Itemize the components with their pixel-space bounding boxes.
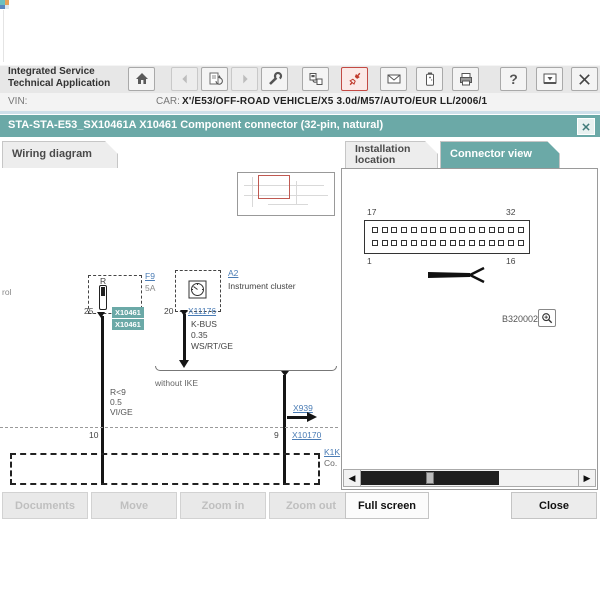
- minimize-screen-button[interactable]: [536, 67, 563, 91]
- connector-pin: [372, 227, 378, 233]
- close-button[interactable]: Close: [511, 492, 597, 519]
- branch-arrow-shaft: [287, 416, 308, 419]
- print-button[interactable]: [452, 67, 479, 91]
- connector-pin-label-topleft: 17: [367, 207, 376, 217]
- wire-label-line2: 0.5: [110, 397, 122, 407]
- wiring-diagram-panel: [0, 168, 339, 490]
- document-refresh-icon: [207, 71, 223, 87]
- connector-pin: [450, 240, 456, 246]
- pin-number-10: 10: [89, 430, 98, 440]
- back-icon: [178, 72, 192, 86]
- close-icon: [581, 122, 591, 132]
- help-icon: ?: [509, 71, 518, 87]
- connector-pin: [391, 227, 397, 233]
- connector-pin: [450, 227, 456, 233]
- variant-note: without IKE: [155, 378, 198, 388]
- tab-wiring-diagram[interactable]: Wiring diagram: [2, 141, 118, 168]
- full-screen-button[interactable]: Full screen: [345, 492, 429, 519]
- move-button[interactable]: Move: [91, 492, 177, 519]
- home-icon: [134, 71, 150, 87]
- connector-pin: [498, 227, 504, 233]
- screenshot-root: Integrated Service Technical Application: [0, 0, 600, 600]
- fuse-rating: 5A: [145, 283, 155, 293]
- connector-pin: [382, 240, 388, 246]
- zoom-in-button[interactable]: Zoom in: [180, 492, 266, 519]
- home-button[interactable]: [128, 67, 155, 91]
- connector-pin: [391, 240, 397, 246]
- magnifier-icon: [541, 312, 553, 324]
- scrollbar-thumb[interactable]: [361, 471, 499, 485]
- component-name-clipped: Co.: [324, 458, 337, 468]
- tab-label: Connector view: [450, 148, 532, 160]
- tab-label: Installation location: [355, 144, 410, 166]
- connector-view-scrollbar[interactable]: ◀ ▶: [343, 469, 596, 487]
- connector-pin: [421, 240, 427, 246]
- connector-body: [364, 220, 530, 254]
- image-zoom-button[interactable]: [538, 309, 556, 327]
- dialog-title: STA-STA-E53_SX10461A X10461 Component co…: [8, 119, 383, 131]
- screen-icon: [542, 71, 558, 87]
- connector-view-panel: [341, 168, 598, 490]
- pin-number: 25: [84, 306, 93, 316]
- cluster-name: Instrument cluster: [228, 281, 296, 291]
- connector-pin: [518, 227, 524, 233]
- connector-pin: [469, 240, 475, 246]
- bus-bracket-line: [155, 366, 337, 371]
- connector-pin: [518, 240, 524, 246]
- connector-pin: [489, 240, 495, 246]
- connector-link-x11176[interactable]: X11176: [188, 306, 216, 316]
- connector-pin-label-topright: 32: [506, 207, 515, 217]
- connector-tag-x10461-a[interactable]: X10461: [112, 307, 144, 318]
- connector-pin: [469, 227, 475, 233]
- component-boundary-box[interactable]: [10, 453, 320, 485]
- connection-icon: [308, 71, 324, 87]
- cluster-link[interactable]: A2: [228, 268, 238, 278]
- zoom-out-button[interactable]: Zoom out: [269, 492, 353, 519]
- connector-tag-x10461-b[interactable]: X10461: [112, 319, 144, 330]
- minimap-viewport[interactable]: [258, 175, 290, 199]
- connector-pin: [372, 240, 378, 246]
- connector-pin-label-bottomleft: 1: [367, 256, 372, 266]
- connector-pin-row: [372, 240, 524, 246]
- fuse-symbol: [99, 285, 107, 310]
- dialog-close-button[interactable]: [577, 118, 595, 135]
- vin-label: VIN:: [8, 96, 27, 107]
- connection-manager-button[interactable]: [302, 67, 329, 91]
- scrollbar-grip: [426, 472, 434, 484]
- connector-pin: [479, 227, 485, 233]
- car-label: CAR:: [156, 96, 180, 107]
- help-button[interactable]: ?: [500, 67, 527, 91]
- scroll-left-button[interactable]: ◀: [344, 470, 361, 486]
- tab-connector-view[interactable]: Connector view: [440, 141, 560, 168]
- app-title-line2: Technical Application: [8, 78, 110, 90]
- connector-pin: [411, 240, 417, 246]
- connector-pin: [401, 227, 407, 233]
- connector-plug-icon: [347, 71, 363, 87]
- connector-pin-row: [372, 227, 524, 233]
- tab-label: Wiring diagram: [12, 148, 92, 160]
- component-link-k1k[interactable]: K1K: [324, 447, 340, 457]
- app-close-button[interactable]: [571, 67, 598, 91]
- connector-pin: [430, 227, 436, 233]
- wire-cluster: [183, 314, 186, 360]
- connector-pin: [508, 227, 514, 233]
- wrench-icon: [267, 71, 283, 87]
- diagram-minimap[interactable]: [237, 172, 335, 216]
- page-corner-artifact: [0, 0, 9, 9]
- close-icon: [577, 72, 592, 87]
- connector-pin-label-bottomright: 16: [506, 256, 515, 266]
- forward-button[interactable]: [231, 67, 258, 91]
- vehicle-connector-button[interactable]: [341, 67, 368, 91]
- connector-pin: [421, 227, 427, 233]
- connector-pin: [382, 227, 388, 233]
- fuse-link[interactable]: F9: [145, 271, 155, 281]
- branch-arrow-head: [307, 412, 317, 422]
- tab-label-line2: location: [355, 154, 395, 166]
- bus-label: K-BUS: [191, 319, 217, 329]
- instrument-cluster-icon: [188, 280, 207, 299]
- pin-number: 20: [164, 306, 173, 316]
- artifact-line: [3, 10, 4, 62]
- tab-installation-location[interactable]: Installation location: [345, 141, 438, 168]
- back-button[interactable]: [171, 67, 198, 91]
- ground-dashed-line: [0, 427, 338, 428]
- dialog-title-bar: STA-STA-E53_SX10461A X10461 Component co…: [0, 115, 600, 137]
- connector-pin: [459, 240, 465, 246]
- connector-pin: [498, 240, 504, 246]
- document-refresh-button[interactable]: [201, 67, 228, 91]
- connector-pin: [440, 227, 446, 233]
- connector-pin: [440, 240, 446, 246]
- mail-icon: [386, 71, 402, 87]
- app-title: Integrated Service Technical Application: [8, 66, 110, 90]
- connector-pin: [401, 240, 407, 246]
- messages-button[interactable]: [380, 67, 407, 91]
- connector-lock-symbol: [426, 266, 496, 284]
- printer-icon: [458, 71, 474, 87]
- connector-pin: [411, 227, 417, 233]
- wire-color-code: WS/RT/GE: [191, 341, 233, 351]
- connector-pin: [489, 227, 495, 233]
- connector-link-x10170[interactable]: X10170: [292, 430, 321, 440]
- wire-label-line3: VI/GE: [110, 407, 133, 417]
- forward-icon: [238, 72, 252, 86]
- connector-pin: [430, 240, 436, 246]
- connector-pin: [479, 240, 485, 246]
- clipped-component-text: rol: [2, 287, 11, 297]
- battery-status-button[interactable]: [416, 67, 443, 91]
- wire-label-line1: R<9: [110, 387, 126, 397]
- pin-number-9: 9: [274, 430, 279, 440]
- car-value: X'/E53/OFF-ROAD VEHICLE/X5 3.0d/M57/AUTO…: [182, 96, 487, 107]
- battery-icon: [422, 71, 438, 87]
- connector-pin: [459, 227, 465, 233]
- wire-cross-section: 0.35: [191, 330, 208, 340]
- connector-pin: [508, 240, 514, 246]
- workshop-tools-button[interactable]: [261, 67, 288, 91]
- scroll-right-button[interactable]: ▶: [578, 470, 595, 486]
- figure-id: B320002: [502, 314, 538, 324]
- app-title-line1: Integrated Service: [8, 66, 110, 78]
- documents-button[interactable]: Documents: [2, 492, 88, 519]
